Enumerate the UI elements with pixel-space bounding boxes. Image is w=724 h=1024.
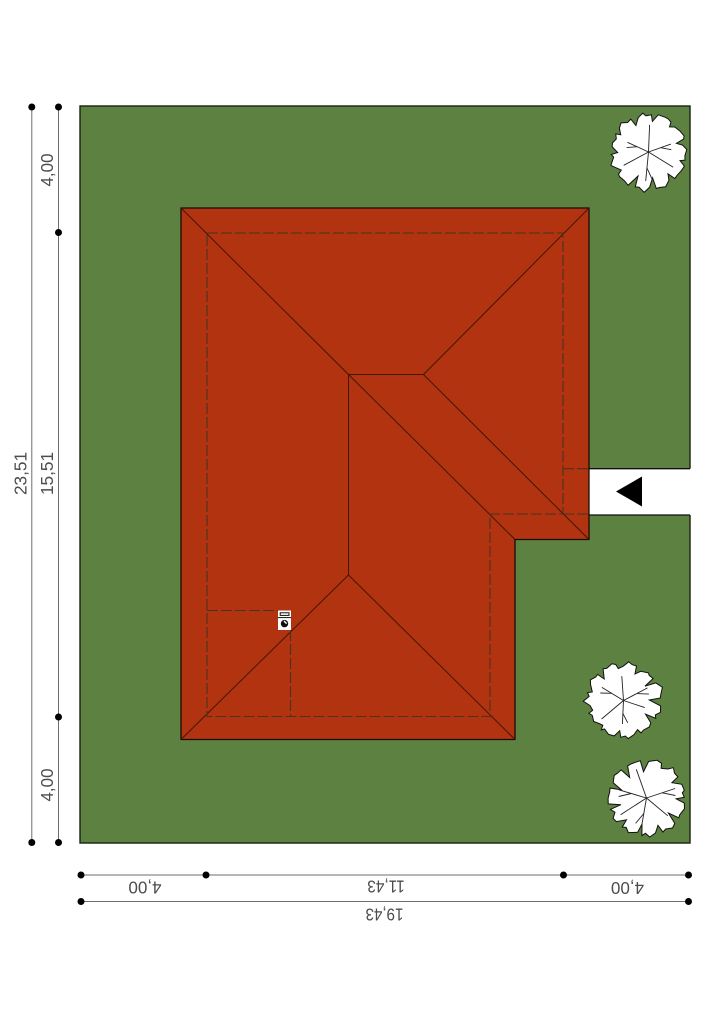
svg-text:4,00: 4,00	[611, 878, 644, 898]
svg-text:4,00: 4,00	[37, 153, 57, 186]
svg-text:4,00: 4,00	[37, 768, 57, 801]
svg-text:11,43: 11,43	[367, 877, 405, 897]
svg-text:15,51: 15,51	[37, 452, 57, 495]
svg-text:4,00: 4,00	[128, 878, 161, 898]
svg-text:23,51: 23,51	[11, 452, 31, 495]
svg-text:19,43: 19,43	[366, 905, 404, 925]
